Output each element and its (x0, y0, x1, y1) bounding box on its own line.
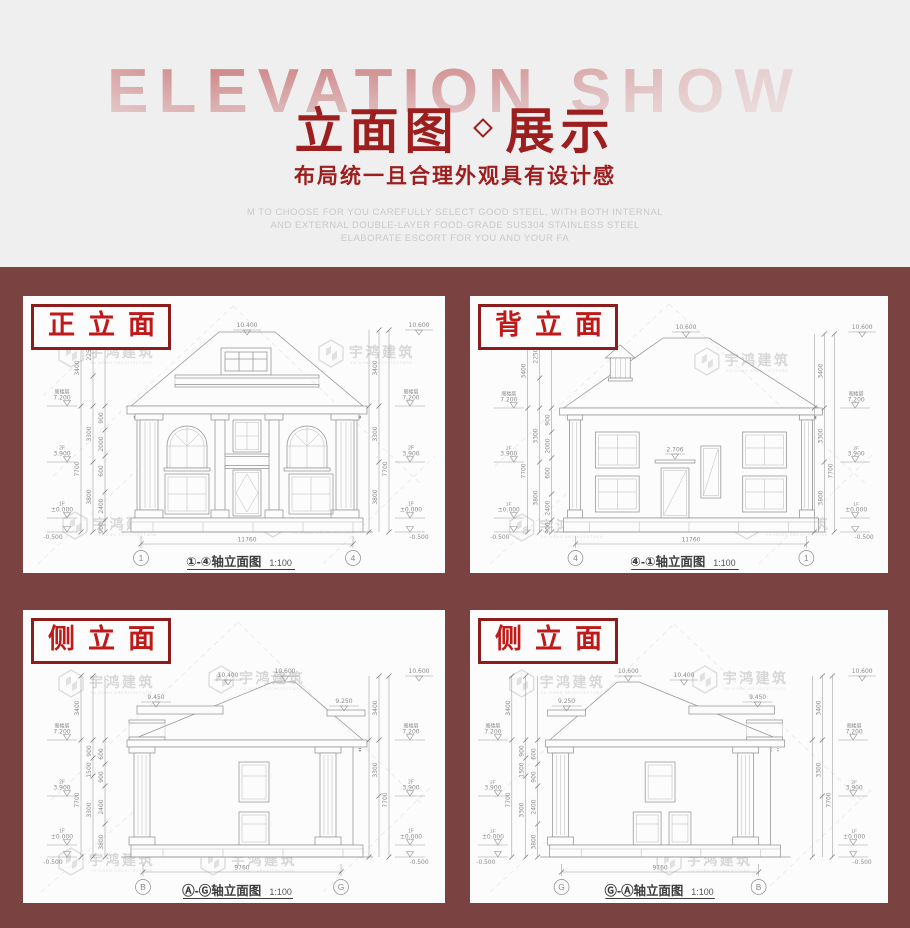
page-subtitle: 布局统一且合理外观具有设计感 (0, 160, 910, 190)
svg-text:9760: 9760 (653, 864, 668, 871)
svg-text:-0.500: -0.500 (490, 534, 509, 541)
svg-text:9.450: 9.450 (749, 694, 766, 701)
axis-bubble-right: 1 (799, 551, 814, 566)
svg-text:11760: 11760 (681, 536, 700, 543)
svg-text:10.400: 10.400 (218, 672, 239, 679)
svg-text:7700: 7700 (521, 463, 528, 478)
svg-text:3400: 3400 (372, 360, 379, 375)
svg-text:10.600: 10.600 (676, 324, 697, 331)
svg-text:10.400: 10.400 (237, 322, 258, 329)
svg-text:10.600: 10.600 (852, 668, 873, 675)
svg-text:①-④轴立面图1:100: ①-④轴立面图1:100 (186, 554, 292, 569)
svg-text:±0.000: ±0.000 (51, 507, 73, 514)
svg-text:-0.500: -0.500 (855, 534, 874, 541)
svg-text:3.900: 3.900 (53, 785, 70, 792)
top-dim-mid: 10.400 (214, 672, 242, 685)
svg-text:YU HONG ARCHITECTURE: YU HONG ARCHITECTURE (240, 687, 303, 691)
svg-text:3800: 3800 (533, 490, 540, 505)
svg-text:YU HONG ARCHITECTURE: YU HONG ARCHITECTURE (350, 361, 413, 365)
svg-text:-0.500: -0.500 (43, 859, 63, 866)
svg-text:10.600: 10.600 (409, 322, 430, 329)
svg-text:7700: 7700 (74, 461, 81, 476)
svg-text:900: 900 (531, 771, 538, 783)
level-markers-right: 阁楼层 7.200 2F 3.900 1F ±0.000 -0.500 (395, 389, 429, 542)
svg-text:-0.500: -0.500 (409, 859, 429, 866)
svg-text:7.200: 7.200 (500, 396, 517, 403)
house-side (121, 682, 373, 857)
svg-text:600: 600 (545, 467, 552, 479)
watermark-logo: 宇鸿建筑 YU HONG ARCHITECTURE (319, 340, 415, 367)
svg-text:3.900: 3.900 (402, 785, 419, 792)
svg-text:±0.000: ±0.000 (845, 506, 867, 513)
svg-text:7700: 7700 (382, 461, 389, 476)
svg-text:B: B (756, 882, 762, 892)
svg-text:4: 4 (351, 553, 356, 563)
svg-text:3400: 3400 (521, 363, 528, 378)
svg-text:3400: 3400 (505, 700, 512, 715)
svg-text:3.900: 3.900 (53, 451, 70, 458)
diamond-icon (473, 118, 493, 138)
svg-text:④-①轴立面图1:100: ④-①轴立面图1:100 (630, 554, 735, 569)
svg-text:3800: 3800 (98, 834, 105, 849)
svg-text:宇鸿建筑: 宇鸿建筑 (89, 674, 155, 690)
panel-label-side-2: 侧立面 (478, 618, 618, 664)
svg-text:B: B (140, 882, 146, 892)
svg-text:900: 900 (545, 522, 552, 534)
bottom-dim: 11760 (573, 536, 809, 548)
svg-text:3300: 3300 (86, 802, 93, 817)
svg-text:3.900: 3.900 (402, 451, 419, 458)
svg-text:2400: 2400 (98, 799, 105, 814)
axis-bubble-left: 1 (134, 551, 149, 566)
svg-text:3800: 3800 (372, 489, 379, 504)
description: M TO CHOOSE FOR YOU CAREFULLY SELECT GOO… (0, 206, 910, 245)
svg-text:1500: 1500 (519, 762, 526, 777)
level-markers-left: 阁楼层 7.200 2F 3.900 1F ±0.000 -0.500 (43, 389, 77, 542)
svg-text:G: G (558, 882, 565, 892)
house-front (121, 332, 373, 532)
svg-text:3800: 3800 (817, 490, 824, 505)
svg-text:7700: 7700 (505, 792, 512, 807)
top-dim-apex: 10.400 (233, 322, 261, 335)
svg-text:3.900: 3.900 (484, 784, 501, 791)
svg-text:±0.000: ±0.000 (498, 506, 520, 513)
svg-text:宇鸿建筑: 宇鸿建筑 (349, 344, 415, 360)
svg-text:3300: 3300 (815, 762, 822, 777)
page: ELEVATION SHOW 立面图 展示 布局统一且合理外观具有设计感 M T… (0, 0, 910, 928)
caption: ①-④轴立面图1:100 (186, 554, 295, 570)
top-dim-right: 10.600 (405, 322, 433, 335)
level-markers-right: 阁楼层 7.200 2F 3.900 1F ±0.000 -0.500 (840, 390, 874, 541)
axis-bubble-left: 4 (568, 551, 583, 566)
svg-text:3300: 3300 (519, 802, 526, 817)
svg-text:-0.500: -0.500 (476, 859, 495, 866)
house-side-mirrored (540, 682, 791, 857)
svg-text:3300: 3300 (86, 426, 93, 441)
svg-text:YU HONG ARCHITECTURE: YU HONG ARCHITECTURE (688, 869, 751, 873)
svg-text:3400: 3400 (74, 700, 81, 715)
svg-text:G: G (338, 882, 345, 892)
level-markers-left: 阁楼层 7.200 2F 3.900 1F ±0.000 -0.500 (476, 722, 507, 866)
svg-text:YU HONG ARCHITECTURE: YU HONG ARCHITECTURE (90, 691, 153, 695)
svg-text:YU HONG ARCHITECTURE: YU HONG ARCHITECTURE (726, 369, 789, 373)
svg-text:10.600: 10.600 (275, 668, 296, 675)
svg-text:2400: 2400 (98, 498, 105, 513)
svg-text:9.450: 9.450 (147, 694, 164, 701)
svg-text:±0.000: ±0.000 (51, 834, 73, 841)
bottom-dim: 9760 (141, 864, 344, 876)
svg-text:10.600: 10.600 (618, 668, 639, 675)
caption: Ⓖ-Ⓐ轴立面图1:100 (605, 883, 715, 899)
bottom-dim: 11760 (139, 536, 356, 548)
svg-text:2.706: 2.706 (666, 446, 683, 453)
svg-text:Ⓐ-Ⓖ轴立面图1:100: Ⓐ-Ⓖ轴立面图1:100 (182, 883, 292, 898)
svg-text:3400: 3400 (74, 360, 81, 375)
svg-text:1: 1 (804, 553, 809, 563)
svg-text:900: 900 (98, 771, 105, 783)
top-dim-right: 10.600 (848, 324, 876, 337)
svg-text:3300: 3300 (372, 762, 379, 777)
axis-bubble-right: B (751, 880, 766, 895)
axis-bubble-right: G (334, 880, 349, 895)
panel-label-side-1: 侧立面 (31, 618, 171, 664)
svg-text:±0.000: ±0.000 (843, 833, 865, 840)
top-dim-right-low: 9.450 (743, 694, 773, 707)
svg-text:4: 4 (573, 553, 578, 563)
axis-bubble-left: G (554, 880, 569, 895)
watermark-logo: 宇鸿建筑 YU HONG ARCHITECTURE (510, 670, 605, 697)
axis-bubble-left: B (136, 880, 151, 895)
header-section: ELEVATION SHOW 立面图 展示 布局统一且合理外观具有设计感 M T… (0, 0, 910, 267)
svg-text:900: 900 (545, 414, 552, 426)
top-dim-apex: 10.600 (672, 324, 700, 337)
description-line: AND EXTERNAL DOUBLE-LAYER FOOD-GRADE SUS… (0, 219, 910, 232)
svg-text:7.200: 7.200 (402, 729, 419, 736)
svg-text:10.600: 10.600 (852, 324, 873, 331)
svg-text:7.200: 7.200 (484, 728, 501, 735)
top-dim-right: 10.600 (848, 668, 876, 681)
top-dim-mid: 10.400 (670, 672, 698, 685)
svg-text:7.200: 7.200 (846, 728, 863, 735)
axis-bubble-right: 4 (346, 551, 361, 566)
svg-text:-0.500: -0.500 (853, 859, 872, 866)
svg-text:7700: 7700 (825, 792, 832, 807)
svg-text:900: 900 (98, 412, 105, 424)
svg-text:3800: 3800 (531, 834, 538, 849)
svg-text:7.200: 7.200 (53, 729, 70, 736)
svg-text:±0.000: ±0.000 (400, 507, 422, 514)
svg-text:3.900: 3.900 (848, 450, 865, 457)
svg-text:2250: 2250 (533, 348, 540, 363)
svg-text:600: 600 (531, 748, 538, 760)
watermark-logo: 宇鸿建筑 YU HONG ARCHITECTURE (693, 666, 788, 693)
description-line: ELABORATE ESCORT FOR YOU AND YOUR FA (0, 232, 910, 245)
svg-text:9760: 9760 (234, 865, 249, 872)
svg-text:11760: 11760 (237, 537, 256, 544)
caption: ④-①轴立面图1:100 (630, 554, 738, 570)
svg-text:7700: 7700 (74, 792, 81, 807)
svg-text:900: 900 (86, 745, 93, 757)
svg-text:宇鸿建筑: 宇鸿建筑 (540, 674, 606, 690)
level-markers-left: 阁楼层 7.200 2F 3.900 1F ±0.000 -0.500 (43, 723, 77, 867)
svg-text:Ⓖ-Ⓐ轴立面图1:100: Ⓖ-Ⓐ轴立面图1:100 (605, 883, 714, 898)
svg-text:-0.500: -0.500 (409, 534, 429, 541)
top-dim-right: 10.600 (405, 668, 433, 681)
svg-text:9.250: 9.250 (335, 698, 352, 705)
svg-text:600: 600 (98, 748, 105, 760)
svg-text:2400: 2400 (545, 500, 552, 515)
caption: Ⓐ-Ⓖ轴立面图1:100 (182, 883, 293, 899)
svg-text:2000: 2000 (545, 438, 552, 453)
title-text-left: 立面图 (294, 92, 459, 163)
svg-text:7.200: 7.200 (848, 396, 865, 403)
svg-text:600: 600 (98, 465, 105, 477)
svg-text:900: 900 (98, 522, 105, 534)
svg-text:3800: 3800 (86, 489, 93, 504)
panel-back-elevation[interactable]: 宇鸿建筑 YU HONG ARCHITECTURE 宇鸿建筑 YU HONG A… (470, 296, 888, 573)
svg-text:3.900: 3.900 (846, 784, 863, 791)
svg-text:3300: 3300 (817, 428, 824, 443)
watermark-logo: 宇鸿建筑 YU HONG ARCHITECTURE (59, 670, 155, 697)
svg-text:3300: 3300 (372, 426, 379, 441)
svg-text:2000: 2000 (98, 436, 105, 451)
panel-label-front: 正立面 (31, 304, 171, 350)
level-markers-right: 阁楼层 7.200 2F 3.900 1F ±0.000 -0.500 (838, 722, 872, 866)
page-title: 立面图 展示 (0, 92, 910, 163)
svg-text:3400: 3400 (372, 700, 379, 715)
watermark-logo: 宇鸿建筑 YU HONG ARCHITECTURE (695, 348, 790, 375)
panel-front-elevation[interactable]: 宇鸿建筑 YU HONG ARCHITECTURE 宇鸿建筑 YU HONG A… (23, 296, 445, 573)
svg-text:7.200: 7.200 (53, 395, 70, 402)
svg-text:1500: 1500 (86, 762, 93, 777)
svg-text:±0.000: ±0.000 (482, 833, 504, 840)
svg-text:10.400: 10.400 (674, 672, 695, 679)
svg-text:YU HONG ARCHITECTURE: YU HONG ARCHITECTURE (541, 535, 604, 539)
svg-text:±0.000: ±0.000 (400, 834, 422, 841)
svg-text:2400: 2400 (531, 799, 538, 814)
svg-text:YU HONG ARCHITECTURE: YU HONG ARCHITECTURE (724, 687, 787, 691)
svg-text:900: 900 (519, 745, 526, 757)
title-text-right: 展示 (506, 92, 616, 163)
svg-text:YU HONG ARCHITECTURE: YU HONG ARCHITECTURE (90, 361, 153, 365)
svg-text:-0.500: -0.500 (43, 534, 63, 541)
panel-side-elevation-ag[interactable]: 宇鸿建筑 YU HONG ARCHITECTURE 宇鸿建筑 YU HONG A… (23, 610, 445, 903)
top-dim-right-low: 9.250 (329, 698, 359, 711)
svg-text:YU HONG ARCHITECTURE: YU HONG ARCHITECTURE (766, 533, 829, 537)
panel-label-back: 背立面 (478, 304, 618, 350)
svg-text:7.200: 7.200 (402, 395, 419, 402)
top-dim-left-low: 9.450 (141, 694, 171, 707)
svg-text:9.250: 9.250 (558, 698, 575, 705)
elevation-showcase: 宇鸿建筑 YU HONG ARCHITECTURE 宇鸿建筑 YU HONG A… (0, 267, 910, 928)
svg-text:3300: 3300 (533, 428, 540, 443)
panel-side-elevation-ga[interactable]: 宇鸿建筑 YU HONG ARCHITECTURE 宇鸿建筑 YU HONG A… (470, 610, 888, 903)
svg-text:10.600: 10.600 (409, 668, 430, 675)
top-dim-left-low: 9.250 (552, 698, 582, 711)
svg-text:3400: 3400 (817, 363, 824, 378)
svg-text:7700: 7700 (827, 463, 834, 478)
svg-text:3.900: 3.900 (500, 450, 517, 457)
svg-text:1: 1 (139, 553, 144, 563)
svg-text:YU HONG ARCHITECTURE: YU HONG ARCHITECTURE (541, 691, 604, 695)
svg-text:7700: 7700 (382, 792, 389, 807)
svg-text:3400: 3400 (815, 700, 822, 715)
description-line: M TO CHOOSE FOR YOU CAREFULLY SELECT GOO… (0, 206, 910, 219)
top-dim-apex: 10.600 (614, 668, 642, 681)
svg-text:宇鸿建筑: 宇鸿建筑 (723, 670, 789, 686)
